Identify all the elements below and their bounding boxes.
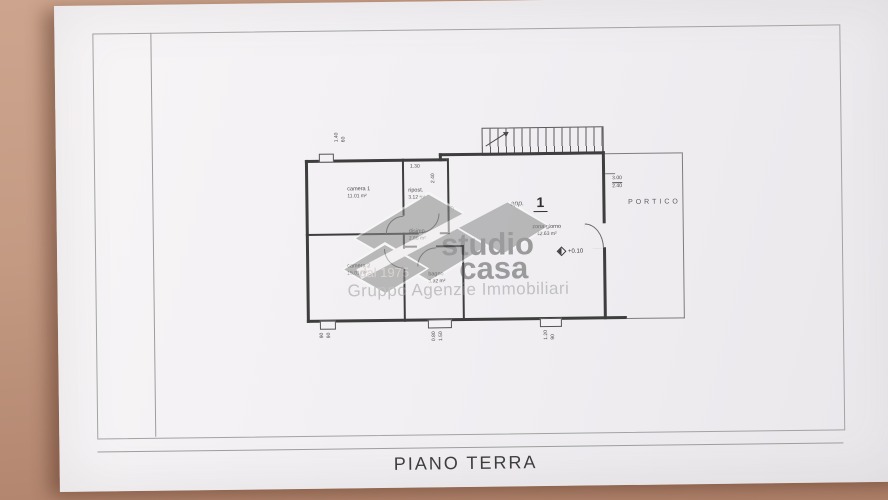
room-area: 2.86 m² [409, 236, 426, 243]
portico-step-line [605, 173, 615, 174]
door-arc-camera2 [384, 249, 404, 269]
floor-plan: camera 1 11.01 m² ripost. 3.12 m² disimp… [304, 122, 687, 357]
dim-portico-depth: 2.40 [612, 183, 622, 189]
dim-corridor-depth: 2.40 [431, 173, 437, 183]
dim-window-b1: 90 90 [320, 333, 332, 339]
dim-value: 1.40 [335, 133, 341, 143]
apartment-number: 1 [533, 194, 547, 212]
dim-value: 90 [327, 333, 333, 339]
dim-value: 90 [320, 333, 326, 339]
wall-mid-lower [403, 269, 406, 322]
room-area: 11.01 m² [347, 193, 370, 200]
dim-window-b3: 1.20 90 [544, 330, 556, 340]
door-arc-entrance [585, 223, 604, 248]
level-value: +0.10 [568, 248, 583, 254]
dim-value: 60 [341, 132, 347, 142]
portico-top-line [605, 152, 682, 154]
room-area: 3.12 m² [408, 195, 425, 202]
window-bagno [428, 319, 452, 328]
room-label-ripost: ripost. 3.12 m² [408, 187, 425, 201]
dim-value: 2.40 [431, 173, 437, 183]
door-arc-bagno [417, 247, 436, 266]
dim-value: 1.20 [544, 330, 550, 340]
dim-portico-width: 3.00 [612, 175, 622, 183]
portico-right-line [682, 152, 685, 318]
wall-left [305, 160, 310, 323]
level-marker-icon [557, 246, 567, 256]
room-area: 3.92 m² [428, 278, 445, 285]
page-title: PIANO TERRA [60, 448, 872, 479]
portico-label: PORTICO [626, 198, 682, 206]
room-label-camera1: camera 1 11.01 m² [347, 186, 370, 200]
portico-bottom-line [627, 317, 685, 319]
dim-window-top: 1.40 60 [335, 132, 347, 142]
dim-value: 90 [550, 330, 556, 340]
dim-corridor-width: 1.30 [410, 164, 420, 170]
room-area: 42.63 m² [524, 231, 570, 238]
photo-of-floor-plan: camera 1 11.01 m² ripost. 3.12 m² disimp… [0, 0, 888, 500]
paper-sheet: camera 1 11.01 m² ripost. 3.12 m² disimp… [54, 0, 888, 492]
dim-value: 1.50 [439, 331, 445, 341]
window-camera1 [319, 154, 334, 163]
wall-mid-upper [402, 159, 405, 216]
wall-top-right [439, 151, 605, 156]
room-label-camera2: camera 2 15.01 m² [347, 263, 370, 277]
wall-ripost-right [447, 158, 450, 232]
room-label-bagno: bagno 3.92 m² [428, 271, 445, 285]
wall-bagno-top-a [405, 246, 417, 248]
door-arc-camera1 [386, 216, 404, 234]
dim-window-b2: 0.80 1.50 [432, 331, 444, 341]
wall-ripost-bottom-b [440, 232, 450, 234]
wall-bagno-top-b [436, 245, 464, 247]
room-label-zona-giorno: zona giorno 42.63 m² [524, 224, 570, 238]
dim-value: 0.80 [432, 331, 438, 341]
room-label-disimp: disimp. 2.86 m² [409, 228, 427, 242]
window-camera2 [320, 321, 336, 330]
apartment-label: app. [510, 200, 524, 207]
wall-right-lower [603, 247, 607, 319]
floor-level: +0.10 [558, 248, 583, 255]
wall-bagno-right [462, 245, 465, 321]
wall-right-upper [602, 151, 606, 223]
window-zona-giorno [540, 318, 562, 327]
wall-bottom [307, 316, 627, 323]
room-area: 15.01 m² [347, 270, 370, 277]
